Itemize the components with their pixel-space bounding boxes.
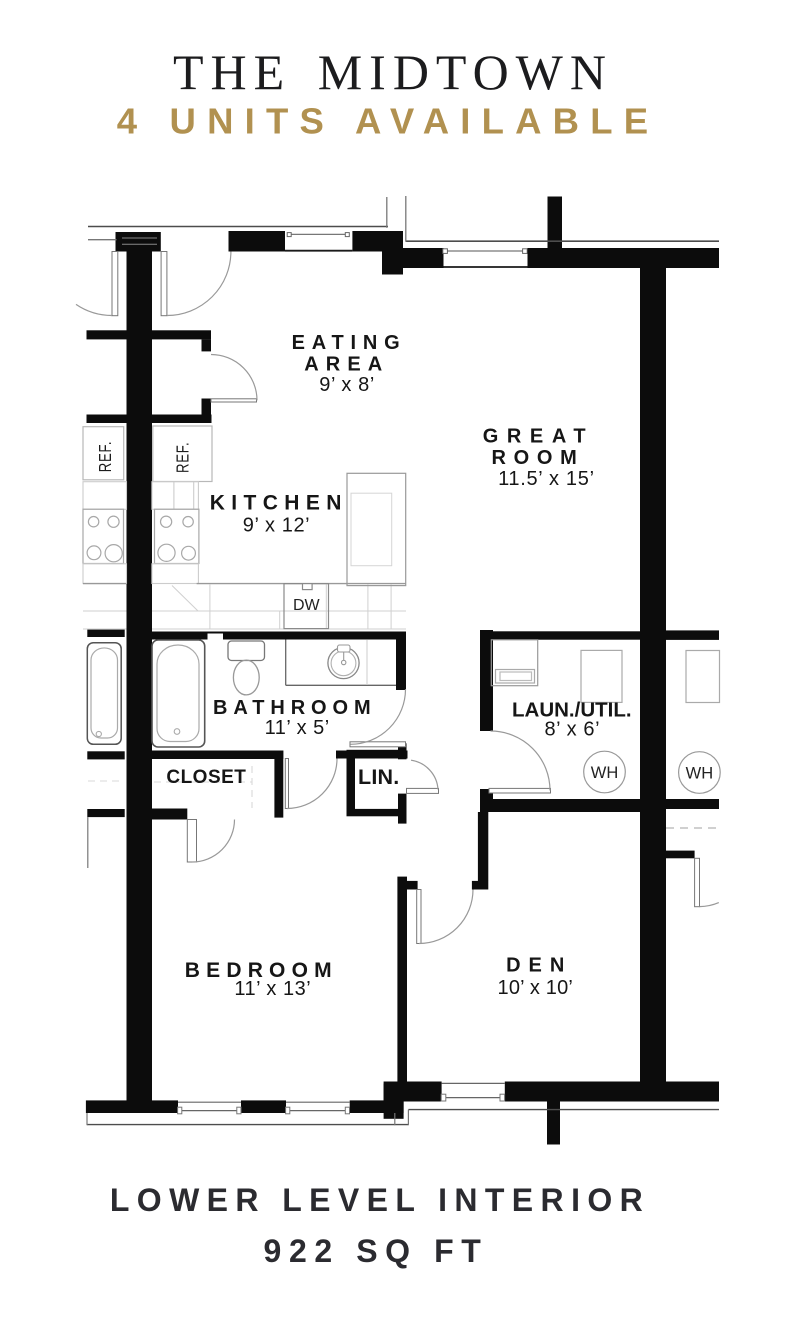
svg-text:8’ x 6’: 8’ x 6’ bbox=[544, 719, 600, 741]
svg-text:9’ x 8’: 9’ x 8’ bbox=[319, 374, 375, 396]
svg-text:9’ x 12’: 9’ x 12’ bbox=[243, 515, 310, 537]
svg-text:10’ x 10’: 10’ x 10’ bbox=[498, 977, 574, 999]
svg-text:11’ x 13’: 11’ x 13’ bbox=[234, 978, 311, 1000]
svg-text:LIN.: LIN. bbox=[358, 765, 399, 789]
svg-text:THE MIDTOWN: THE MIDTOWN bbox=[173, 44, 613, 100]
svg-text:DW: DW bbox=[293, 597, 321, 614]
svg-text:WH: WH bbox=[591, 764, 619, 782]
svg-text:4 UNITS AVAILABLE: 4 UNITS AVAILABLE bbox=[117, 101, 660, 142]
svg-text:922 SQ FT: 922 SQ FT bbox=[264, 1233, 489, 1269]
svg-text:EATING: EATING bbox=[292, 332, 407, 354]
svg-text:REF.: REF. bbox=[95, 441, 115, 473]
svg-text:LOWER LEVEL INTERIOR: LOWER LEVEL INTERIOR bbox=[110, 1182, 650, 1218]
svg-text:KITCHEN: KITCHEN bbox=[210, 492, 348, 515]
svg-text:11.5’ x 15’: 11.5’ x 15’ bbox=[498, 468, 595, 490]
svg-text:11’ x 5’: 11’ x 5’ bbox=[265, 717, 330, 739]
svg-text:REF.: REF. bbox=[173, 442, 193, 474]
svg-text:AREA: AREA bbox=[304, 353, 389, 375]
svg-text:BATHROOM: BATHROOM bbox=[213, 697, 376, 719]
svg-text:DEN: DEN bbox=[506, 955, 572, 977]
svg-text:WH: WH bbox=[686, 765, 714, 783]
svg-text:ROOM: ROOM bbox=[491, 447, 584, 469]
svg-text:CLOSET: CLOSET bbox=[166, 767, 246, 788]
svg-text:GREAT: GREAT bbox=[483, 426, 595, 448]
